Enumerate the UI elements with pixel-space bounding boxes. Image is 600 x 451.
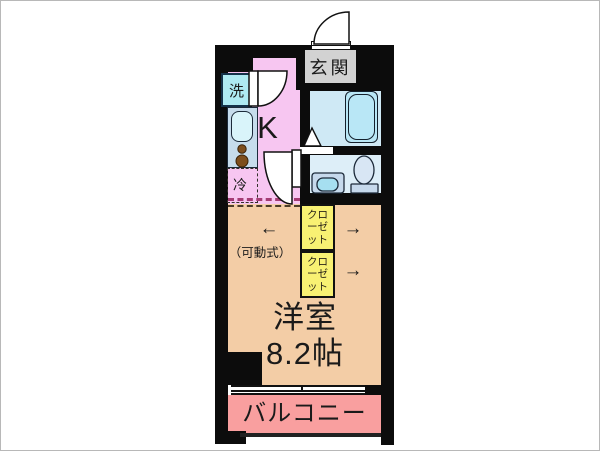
balcony-railing: [240, 433, 381, 437]
window-tick: [301, 387, 303, 391]
movable-arrow-left: ←: [255, 219, 283, 239]
washer-label: 洗: [229, 80, 244, 101]
toilet-room-area: [310, 155, 381, 193]
bathtub-icon: [345, 91, 378, 143]
movable-note: （可動式）: [222, 247, 298, 260]
wall-corner-block: [215, 45, 253, 72]
window-middle-line: [231, 390, 365, 392]
wall-entrance-bottom: [305, 83, 383, 91]
closet-lower-label: クローゼット: [302, 253, 333, 296]
closet-lower-arrow: →: [340, 261, 366, 281]
floorplan: バルコニー 玄関 洗 冷 クローゼット クローゼット: [0, 0, 600, 451]
kitchen-label: K: [250, 112, 286, 145]
room-name-label: 洋室: [225, 302, 385, 335]
washing-machine-icon: 洗: [221, 73, 252, 107]
entrance-sill-line: [312, 45, 350, 46]
wall-window-right: [365, 385, 381, 395]
balcony-area: バルコニー: [228, 395, 381, 433]
closet-lower: クローゼット: [300, 251, 335, 298]
closet-upper: クローゼット: [300, 204, 335, 251]
balcony-label: バルコニー: [242, 401, 367, 426]
entrance-hall: 玄関: [305, 50, 356, 83]
sliding-window-icon: [231, 385, 365, 395]
entrance-label: 玄関: [310, 54, 352, 80]
movable-partition-track-upper: [228, 198, 300, 201]
bathtub-inner-line: [348, 94, 375, 140]
entrance-door-sill: [311, 41, 351, 50]
fridge-label: 冷: [233, 177, 247, 193]
closet-upper-label: クローゼット: [302, 206, 333, 249]
wall-kitchen-bath: [300, 83, 310, 205]
movable-partition-track-lower: [228, 205, 300, 207]
bath-door-opening: [300, 147, 333, 154]
wall-right: [381, 45, 394, 445]
entrance-door-swing-icon: [314, 12, 349, 44]
closet-upper-arrow: →: [340, 219, 366, 239]
room-size-label: 8.2帖: [225, 338, 385, 371]
